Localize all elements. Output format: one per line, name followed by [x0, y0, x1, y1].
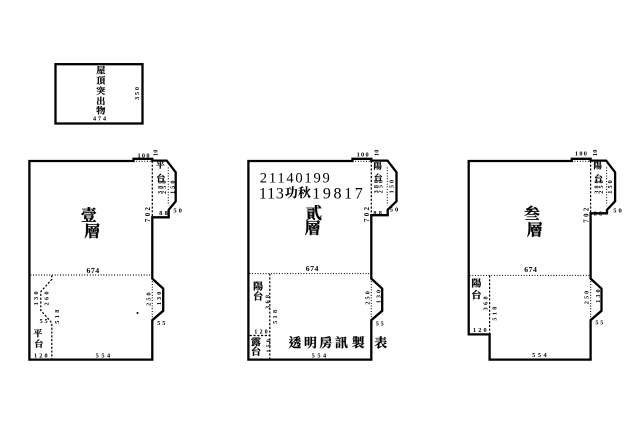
svg-text:150: 150 [169, 181, 176, 195]
svg-text:674: 674 [306, 264, 319, 273]
svg-text:150: 150 [265, 339, 272, 353]
svg-text:55: 55 [376, 320, 384, 327]
svg-text:130: 130 [595, 289, 602, 303]
svg-text:10: 10 [152, 150, 159, 157]
svg-text:130: 130 [375, 290, 382, 304]
svg-text:250: 250 [377, 180, 384, 194]
svg-text:120: 120 [34, 352, 48, 359]
svg-text:250: 250 [583, 291, 590, 305]
svg-text:518: 518 [54, 310, 61, 324]
svg-text:554: 554 [96, 353, 111, 360]
svg-text:260: 260 [43, 291, 50, 305]
svg-text:250: 250 [598, 180, 605, 194]
svg-text:702: 702 [584, 207, 591, 223]
svg-text:674: 674 [524, 265, 537, 274]
svg-text:55: 55 [595, 319, 603, 326]
svg-text:702: 702 [145, 207, 152, 223]
svg-text:250: 250 [365, 291, 372, 305]
svg-text:150: 150 [607, 180, 614, 194]
svg-text:130: 130 [33, 291, 40, 305]
svg-text:554: 554 [532, 352, 547, 359]
svg-text:100: 100 [357, 151, 369, 158]
svg-text:55: 55 [157, 320, 165, 327]
svg-text:50: 50 [613, 207, 622, 214]
svg-text:250: 250 [161, 181, 168, 195]
svg-text:88: 88 [159, 210, 168, 217]
svg-text:554: 554 [312, 352, 327, 359]
svg-text:350: 350 [134, 87, 141, 100]
svg-text:518: 518 [492, 307, 499, 321]
svg-text:10: 10 [592, 150, 599, 157]
svg-text:150: 150 [389, 180, 396, 194]
svg-text:21140199: 21140199 [260, 171, 330, 187]
svg-text:50: 50 [390, 207, 399, 214]
svg-text:113: 113 [259, 185, 284, 202]
svg-text:19817: 19817 [312, 185, 363, 202]
svg-text:368: 368 [265, 295, 272, 309]
svg-text:100: 100 [575, 151, 587, 158]
svg-text:50: 50 [173, 208, 182, 215]
svg-text:474: 474 [93, 116, 107, 123]
svg-text:120: 120 [254, 328, 268, 335]
svg-text:100: 100 [138, 152, 150, 159]
svg-text:10: 10 [373, 150, 380, 157]
svg-text:368: 368 [482, 296, 489, 310]
svg-text:250: 250 [145, 292, 152, 306]
svg-text:120: 120 [473, 327, 487, 334]
svg-text:55: 55 [40, 318, 48, 325]
svg-text:130: 130 [156, 292, 163, 306]
svg-text:518: 518 [272, 310, 279, 324]
svg-text:702: 702 [364, 206, 371, 222]
svg-text:674: 674 [86, 266, 99, 275]
